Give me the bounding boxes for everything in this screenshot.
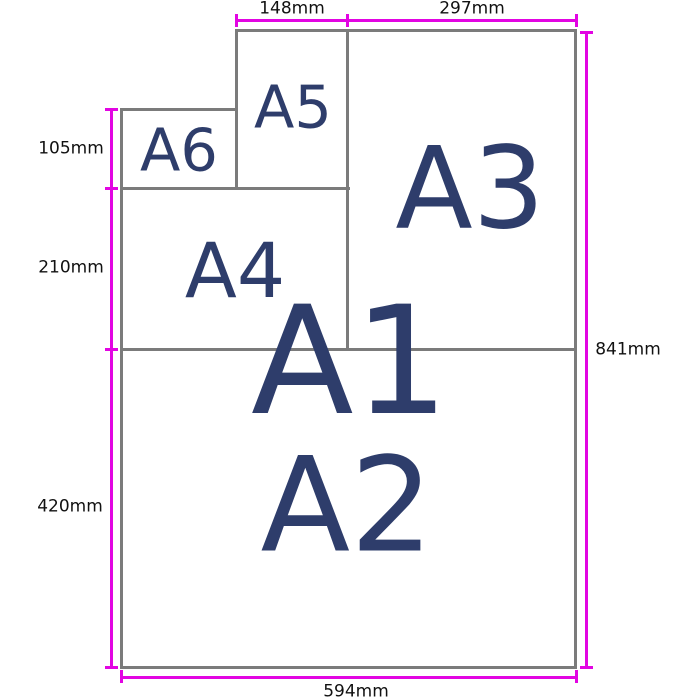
paper-label-a5: A5 <box>254 78 332 137</box>
dimension-tick <box>575 670 578 683</box>
border-a6-top <box>120 108 238 111</box>
paper-label-a2: A2 <box>261 440 434 571</box>
dimension-line-right <box>585 31 588 669</box>
dim-label-a4-height: 210mm <box>38 260 104 277</box>
border-a5-a3-top <box>235 29 577 32</box>
dimension-tick <box>346 14 349 27</box>
dimension-tick <box>105 187 118 190</box>
dim-label-a1-height: 841mm <box>595 342 661 359</box>
dimension-tick <box>235 14 238 27</box>
dim-label-a3-width: 297mm <box>439 1 505 18</box>
border-sheet-bottom <box>120 666 577 669</box>
dim-label-a6-height: 105mm <box>38 141 104 158</box>
paper-label-a3: A3 <box>395 133 544 246</box>
dimension-tick <box>105 666 118 669</box>
dim-label-a1-width: 594mm <box>323 684 389 700</box>
dimension-tick <box>105 108 118 111</box>
paper-sizes-diagram: 148mm 297mm 105mm 210mm 420mm 841mm 594m… <box>0 0 700 700</box>
dimension-tick <box>575 14 578 27</box>
border-sheet-right <box>574 29 577 669</box>
border-a6-a5-divider <box>235 29 238 190</box>
dimension-line-top <box>235 19 578 22</box>
dimension-tick <box>120 670 123 683</box>
dim-label-a5-width: 148mm <box>259 1 325 18</box>
dimension-line-bottom <box>120 676 578 679</box>
dimension-line-left <box>110 109 113 669</box>
dim-label-a2-height: 420mm <box>37 499 103 516</box>
paper-label-a4: A4 <box>185 233 285 309</box>
dimension-tick <box>580 31 593 34</box>
dimension-tick <box>580 666 593 669</box>
paper-label-a6: A6 <box>140 121 218 180</box>
border-sheet-left <box>120 108 123 669</box>
dimension-tick <box>105 348 118 351</box>
